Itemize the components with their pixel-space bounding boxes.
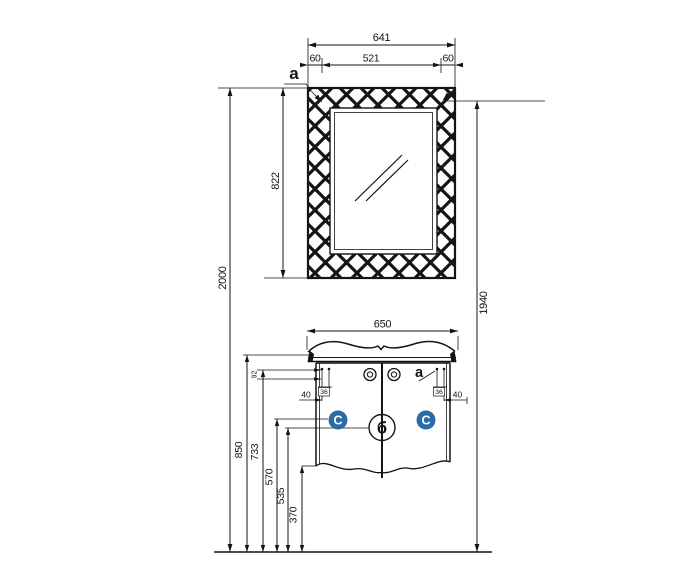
dim-total-height: 2000 <box>217 266 229 289</box>
dim-mirror-total-width: 641 <box>373 32 391 44</box>
dim-mirror-height: 822 <box>270 172 282 190</box>
dim-drill-offset-92: 92 <box>252 371 259 379</box>
dim-drill-offset-36-left: 36 <box>320 389 328 396</box>
dim-mirror-frame-left: 60 <box>309 53 321 65</box>
left-door-knob <box>364 369 376 381</box>
dim-mirror-glass-width: 521 <box>363 53 380 65</box>
marker-section-a-cabinet: a <box>415 365 424 381</box>
dim-door-marker-height: 570 <box>264 468 276 485</box>
dim-drill-offset-40-right: 40 <box>453 390 463 400</box>
worktop-wave-profile <box>308 342 455 352</box>
leader-section-a-mirror <box>284 84 309 88</box>
dim-handle-line-height: 733 <box>249 443 261 460</box>
dim-mirror-mount-height: 1940 <box>478 291 490 314</box>
mirror-front-view <box>308 88 455 278</box>
dim-drill-offset-36-right: 36 <box>435 389 443 396</box>
marker-section-a-mirror: a <box>289 64 299 83</box>
marker-left-door: C <box>333 414 342 428</box>
dim-worktop-height: 850 <box>233 441 245 458</box>
mirror-surface <box>330 108 437 254</box>
drawing-page: 641 60 521 60 2000 822 1940 650 850 733 … <box>0 0 696 586</box>
dim-cabinet-width: 650 <box>374 319 392 331</box>
cabinet-front-view <box>308 342 457 478</box>
worktop-right-cap <box>450 351 457 363</box>
marker-center-joint: б <box>377 420 387 438</box>
dim-mirror-frame-right: 60 <box>442 53 454 65</box>
dim-cabinet-bottom-height: 370 <box>288 506 300 523</box>
dim-center-joint-height: 535 <box>275 487 287 504</box>
dim-drill-offset-40-left: 40 <box>301 390 311 400</box>
installation-drawing: 641 60 521 60 2000 822 1940 650 850 733 … <box>0 0 696 586</box>
right-door-knob <box>388 369 400 381</box>
marker-right-door: C <box>421 414 430 428</box>
